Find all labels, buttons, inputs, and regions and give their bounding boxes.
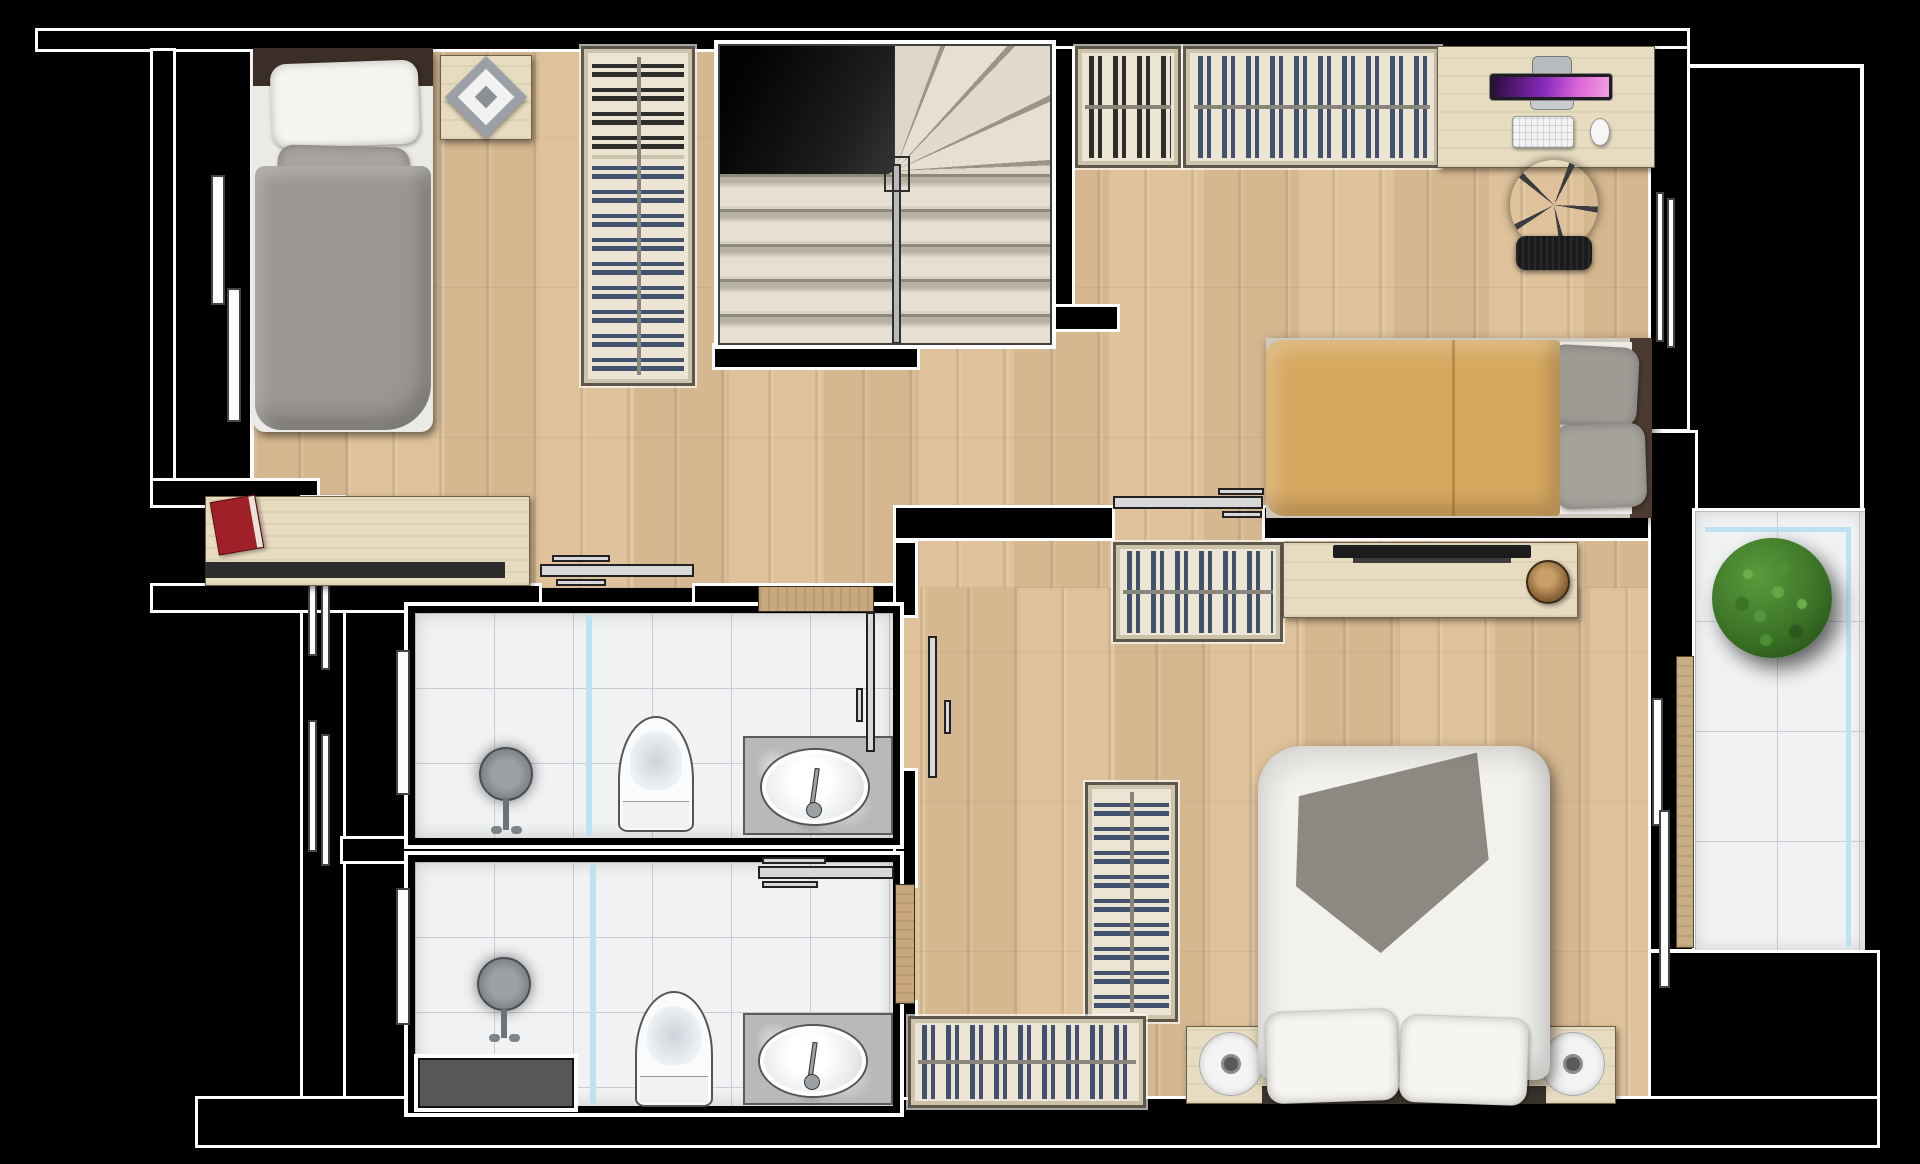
master-closet-top-rail	[1123, 590, 1273, 594]
bathroom2-sliding-door	[758, 866, 894, 879]
wall-bedroom2-bottom-a	[893, 505, 1115, 541]
bathroom1-shower-knob-left	[491, 826, 502, 834]
exterior-contour-top-right-v	[1860, 64, 1864, 514]
bedroom2-bed	[1266, 338, 1652, 518]
bedroom2-duvet-orange	[1266, 340, 1560, 516]
bathroom2-inner-window	[396, 888, 410, 1025]
wall-bedroom1-bottom-a	[150, 583, 542, 613]
bedroom2-door-tab-bottom	[1222, 511, 1262, 518]
bedroom2-closet-blue	[1183, 46, 1441, 168]
bedroom1-wardrobe	[581, 46, 695, 386]
bathroom2-faucet-base	[804, 1074, 820, 1090]
imac-chin	[1530, 100, 1574, 110]
floor-plan-canvas	[0, 0, 1920, 1164]
bedroom2-duvet-fold	[1452, 340, 1455, 516]
bathroom2-outer-window-b	[321, 734, 330, 866]
bedroom1-window-upper	[211, 175, 225, 305]
keyboard	[1512, 116, 1574, 148]
bathroom1-door-tab-bottom	[556, 579, 606, 586]
stair-handrail-top	[884, 156, 910, 192]
exterior-contour-top-right-h	[1688, 64, 1864, 68]
bathroom2-toilet-bowl	[647, 1006, 700, 1064]
wall-stairs-right	[1050, 46, 1075, 308]
bathroom1-inner-window	[396, 650, 410, 795]
bathroom1-shower-glass	[586, 615, 592, 836]
master-closet-top	[1113, 542, 1283, 642]
master-decor-bowl	[1526, 560, 1570, 604]
bathroom1-shower-knob-right	[511, 826, 522, 834]
bathroom1-shower-head	[479, 747, 533, 801]
bathroom2-shower-head	[477, 957, 531, 1011]
bedroom1-bed	[253, 48, 433, 432]
master-closet-low	[908, 1016, 1146, 1108]
master-nightstand-right-disc-center	[1563, 1054, 1583, 1074]
bathroom2-shower-glass	[590, 864, 596, 1104]
master-pillow-right	[1399, 1014, 1530, 1106]
master-closet-low-rail	[918, 1060, 1136, 1064]
bathroom2-outer-window-a	[308, 720, 317, 852]
bathroom2-toilet-tank	[640, 1076, 708, 1103]
bathroom2-shower-arm	[501, 1008, 507, 1038]
mouse	[1590, 118, 1610, 146]
bedroom1-pillow-white	[270, 59, 421, 148]
bedroom2-window-a	[1656, 192, 1664, 342]
bedroom2-window-b	[1667, 198, 1675, 348]
hallway-door-handle-b	[944, 700, 951, 734]
wall-under-stairs	[712, 343, 920, 370]
office-chair-seatback	[1516, 236, 1592, 270]
master-closet-tall	[1085, 782, 1178, 1022]
bathroom2-door-tab-bottom	[762, 881, 818, 888]
master-tv	[1333, 545, 1531, 558]
bathroom1-toilet-tank	[623, 801, 689, 828]
master-tv-stand	[1353, 558, 1511, 563]
bathroom2-door-tab-top	[762, 857, 826, 864]
stair-straight-treads	[720, 174, 1050, 345]
bedroom1-wardrobe-rail	[637, 57, 641, 375]
hallway-door-leaf-left	[866, 612, 875, 752]
hallway-door-leaf-right	[928, 636, 937, 778]
balcony-wood-sill	[1676, 656, 1694, 948]
wall-stairs-foot	[1050, 304, 1120, 332]
bedroom2-closet-dark-rail	[1085, 105, 1171, 109]
bathroom2-shower-knob-left	[489, 1034, 500, 1042]
master-window-lower	[1659, 810, 1670, 988]
balcony-plant	[1712, 538, 1832, 658]
master-closet-tall-rail	[1130, 792, 1134, 1012]
hallway-door-handle-a	[856, 688, 863, 722]
bathroom1-toilet	[618, 716, 694, 832]
bathroom1-door-leaf	[758, 586, 874, 612]
master-nightstand-left-disc-center	[1221, 1054, 1241, 1074]
wall-hall-master-b	[893, 768, 918, 888]
bedroom2-door-tab-top	[1218, 488, 1264, 495]
bedroom2-closet-dark	[1075, 46, 1181, 168]
utility-gray-mat	[418, 1058, 574, 1108]
bathroom1-sliding-door	[540, 564, 694, 577]
balcony-railing-glass-right	[1846, 527, 1851, 947]
bedroom1-window-lower	[227, 288, 241, 422]
bathroom1-toilet-bowl	[630, 731, 682, 789]
bedroom2-pillow-bottom	[1553, 422, 1648, 509]
bathroom1-faucet-base	[806, 802, 822, 818]
bedroom2-pillow-top	[1546, 344, 1640, 429]
bathroom1-door-tab-top	[552, 555, 610, 562]
wall-below-balcony	[1648, 950, 1880, 1102]
wall-hall-master-a	[893, 540, 918, 618]
bathroom2-toilet	[635, 991, 713, 1107]
balcony-railing-glass-top	[1705, 527, 1851, 532]
bathroom2-door-leaf	[895, 884, 915, 1004]
imac-stand	[1532, 56, 1572, 74]
staircase	[718, 44, 1052, 345]
master-pillow-left	[1264, 1008, 1399, 1105]
master-window-upper	[1652, 698, 1663, 826]
bathroom2-shower-knob-right	[509, 1034, 520, 1042]
bedroom1-desk-edge	[205, 562, 505, 578]
wall-left-top	[150, 48, 176, 488]
imac-screen	[1490, 74, 1612, 100]
bedroom2-sliding-door	[1113, 496, 1263, 509]
bedroom1-red-book	[210, 494, 265, 555]
bedroom2-closet-blue-rail	[1194, 105, 1430, 109]
master-bed	[1258, 742, 1550, 1104]
bathroom1-shower-arm	[503, 798, 509, 830]
bedroom1-duvet	[255, 166, 431, 430]
